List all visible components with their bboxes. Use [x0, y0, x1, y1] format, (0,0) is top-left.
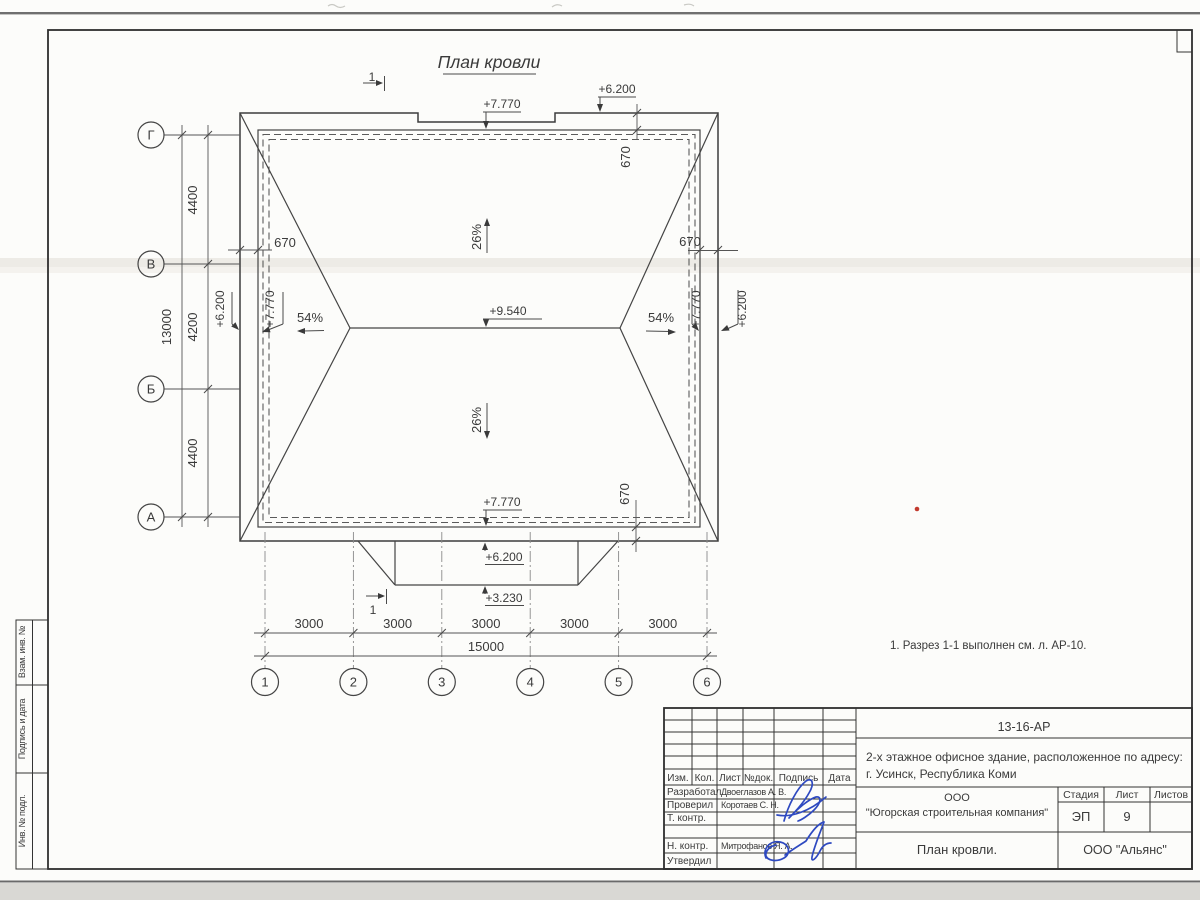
change-col-header: Изм. — [667, 773, 688, 784]
dimension-label: 3000 — [383, 616, 412, 631]
elevation-label: +7.770 — [689, 290, 703, 327]
scanner-background — [0, 883, 1200, 900]
roof-ridge-hips — [240, 113, 718, 541]
section-mark-bottom: 1 — [366, 589, 387, 617]
company-name: "Югорская строительная компания" — [866, 807, 1049, 819]
elevation-label: +6.200 — [485, 550, 522, 564]
axis-bubble-label: Г — [147, 128, 154, 143]
sheet-title: План кровли. — [917, 842, 997, 857]
section-mark-label: 1 — [370, 603, 377, 617]
elevation-label: +6.200 — [735, 290, 749, 327]
strip-label: Подпись и дата — [17, 698, 27, 759]
person-name: Двоеглазов А. В. — [721, 787, 786, 797]
corner-stamp-box — [1177, 30, 1192, 52]
sheet-header: Лист — [1116, 789, 1139, 801]
dimension-label-total: 15000 — [468, 639, 504, 654]
section-mark-top: 1 — [363, 70, 385, 91]
section-mark-label: 1 — [369, 70, 376, 84]
roof-plan-drawing: Взам. инв. № Подпись и дата Инв. № подл.… — [0, 0, 1200, 900]
dimension-label: 4400 — [185, 186, 200, 215]
role-label: Т. контр. — [667, 813, 706, 824]
change-col-header: Дата — [828, 773, 851, 784]
axis-grid-lines-left — [164, 135, 240, 517]
bottom-dimensions: 3000 3000 3000 3000 3000 15000 — [254, 616, 717, 660]
axis-bubble-label: 5 — [615, 675, 622, 690]
strip-label: Взам. инв. № — [17, 625, 27, 678]
scan-streak — [0, 258, 1200, 267]
elevation-label: +3.230 — [485, 591, 522, 605]
pencil-mark — [328, 5, 345, 8]
strip-label: Инв. № подл. — [17, 795, 27, 847]
drawing-title: План кровли — [438, 52, 541, 72]
dimension-label: 3000 — [648, 616, 677, 631]
slope-label: 54% — [297, 310, 323, 325]
drawing-note: 1. Разрез 1-1 выполнен см. л. АР-10. — [890, 640, 1087, 652]
dimension-label-total: 13000 — [159, 309, 174, 345]
left-dimensions: 4400 4200 4400 13000 — [159, 125, 212, 527]
axis-bubble-label: 6 — [703, 675, 710, 690]
organization-name: ООО "Альянс" — [1083, 843, 1167, 857]
elevation-label: +6.200 — [598, 82, 635, 96]
overhang-label: 670 — [274, 235, 296, 250]
side-strip: Взам. инв. № Подпись и дата Инв. № подл. — [16, 620, 48, 869]
title-block: 13-16-АР 2-х этажное офисное здание, рас… — [664, 708, 1192, 869]
overhang-label: 670 — [618, 146, 633, 168]
hip-line — [620, 328, 718, 541]
roof-outline — [240, 113, 718, 541]
elevation-marks-bottom: +7.770 +6.200 +3.230 — [482, 495, 524, 606]
roof-outer-edge — [240, 113, 718, 541]
axis-bubble-label: Б — [147, 382, 156, 397]
scan-streak — [0, 267, 1200, 273]
stage-value: ЭП — [1072, 809, 1091, 824]
slope-label: 54% — [648, 310, 674, 325]
dimension-label: 3000 — [560, 616, 589, 631]
person-name: Коротаев С. Н. — [721, 800, 779, 810]
role-label: Проверил — [667, 800, 713, 811]
hip-line — [240, 328, 350, 541]
axis-bubbles-bottom: 1 2 3 4 5 6 — [252, 669, 721, 696]
hip-line — [240, 113, 350, 328]
sheet-value: 9 — [1123, 809, 1130, 824]
dimension-label: 3000 — [472, 616, 501, 631]
scan-edge-top — [0, 12, 1200, 14]
role-label: Н. контр. — [667, 841, 708, 852]
company-name: ООО — [944, 792, 970, 804]
change-col-header: №док. — [744, 773, 773, 784]
dimension-label: 3000 — [295, 616, 324, 631]
axis-bubble-label: 4 — [527, 675, 534, 690]
slope-label: 26% — [469, 407, 484, 433]
axis-bubble-label: 2 — [350, 675, 357, 690]
axis-bubble-label: 3 — [438, 675, 445, 690]
role-label: Разработал — [667, 786, 722, 798]
overhang-label: 670 — [617, 483, 632, 505]
change-col-header: Лист — [719, 773, 741, 784]
slope-label: 26% — [469, 224, 484, 250]
project-description: 2-х этажное офисное здание, расположенно… — [866, 750, 1183, 764]
elevation-label: +7.770 — [483, 97, 520, 111]
axis-bubble-label: В — [147, 257, 156, 272]
axis-bubble-label: А — [147, 510, 156, 525]
elevation-label: +6.200 — [213, 290, 227, 327]
hip-line — [620, 113, 718, 328]
elevation-label: +9.540 — [489, 304, 526, 318]
pencil-mark — [552, 5, 562, 7]
axis-bubble-label: 1 — [261, 675, 268, 690]
drawing-sheet: Взам. инв. № Подпись и дата Инв. № подл.… — [0, 0, 1200, 900]
overhang-label: 670 — [679, 234, 701, 249]
sheets-header: Листов — [1154, 789, 1189, 801]
scan-edge-bottom — [0, 881, 1200, 883]
elevation-label: +7.770 — [263, 290, 277, 327]
scan-artifacts — [0, 4, 1200, 900]
dimension-label: 4200 — [185, 313, 200, 342]
dimension-label: 4400 — [185, 439, 200, 468]
elevation-label: +7.770 — [483, 495, 520, 509]
elevation-mark-ridge: +9.540 — [483, 304, 542, 327]
red-speck — [915, 507, 920, 512]
change-col-header: Кол. — [695, 773, 715, 784]
role-label: Утвердил — [667, 856, 711, 867]
elevation-marks-right: +7.770 +6.200 — [689, 288, 749, 334]
elevation-marks-left: +6.200 +7.770 — [213, 290, 283, 335]
project-description: г. Усинск, Республика Коми — [866, 767, 1017, 781]
stage-header: Стадия — [1063, 789, 1099, 801]
doc-number: 13-16-АР — [998, 720, 1051, 734]
pencil-mark — [684, 4, 694, 6]
